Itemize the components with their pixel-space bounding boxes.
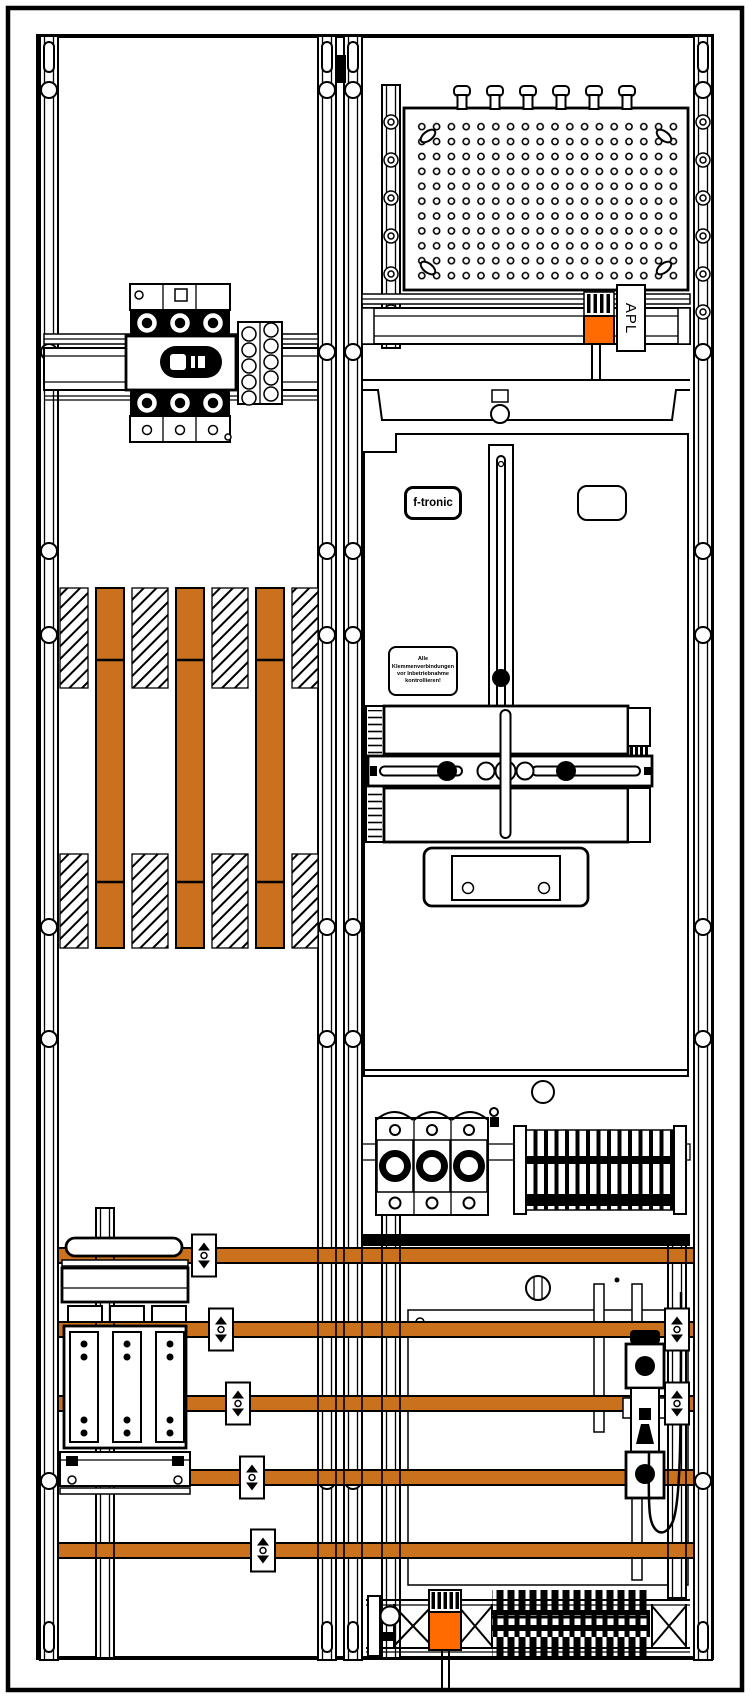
warning-plate: Alle Klemmenverbindungen vor Inbetriebna…	[388, 646, 458, 696]
cable-connector-block	[376, 1108, 499, 1215]
apl-label-plate: APL	[616, 284, 646, 352]
device-terminal-icon	[635, 1464, 655, 1484]
blank-nameplate	[578, 486, 626, 520]
panel-clamp-icon	[532, 1081, 554, 1103]
busbar-clamp-icon	[240, 1457, 264, 1499]
fuse-connection-unit	[60, 1238, 190, 1494]
meter-bracket	[424, 848, 588, 906]
fixing-knob-icon	[437, 761, 457, 781]
busbar-clamp-icon	[251, 1530, 275, 1572]
meter-panel	[364, 434, 688, 1103]
rail-coupler	[335, 55, 346, 83]
cable-clamp-icon	[491, 405, 509, 423]
busbar-clamp-icon	[226, 1383, 250, 1425]
fixing-knob-icon	[556, 761, 576, 781]
cabinet-line-art	[0, 0, 750, 1698]
busbar-clamp-icon	[665, 1383, 689, 1425]
perforated-plate	[404, 86, 688, 290]
meter-cross	[366, 706, 652, 842]
apl-label: APL	[623, 302, 640, 333]
terminal-strip	[514, 1126, 686, 1214]
brand-name: f-tronic	[413, 497, 453, 509]
device-terminal-icon	[635, 1356, 655, 1376]
busbar-clamp-icon	[209, 1309, 233, 1351]
switch-terminal-block	[238, 322, 282, 405]
brand-badge: f-tronic	[404, 486, 462, 520]
device-support	[632, 1498, 642, 1580]
busbar-clamp-icon	[665, 1309, 689, 1351]
main-switch	[126, 284, 236, 442]
vertical-busbars	[96, 588, 284, 948]
meter-cabinet-drawing: APL f-tronic Alle Klemmenverbindungen vo…	[0, 0, 750, 1698]
busbar-clamp-icon	[192, 1235, 216, 1277]
comb-terminal-strip	[492, 1590, 650, 1659]
slotted-screw-icon	[526, 1276, 550, 1300]
hole-grid	[414, 120, 680, 284]
